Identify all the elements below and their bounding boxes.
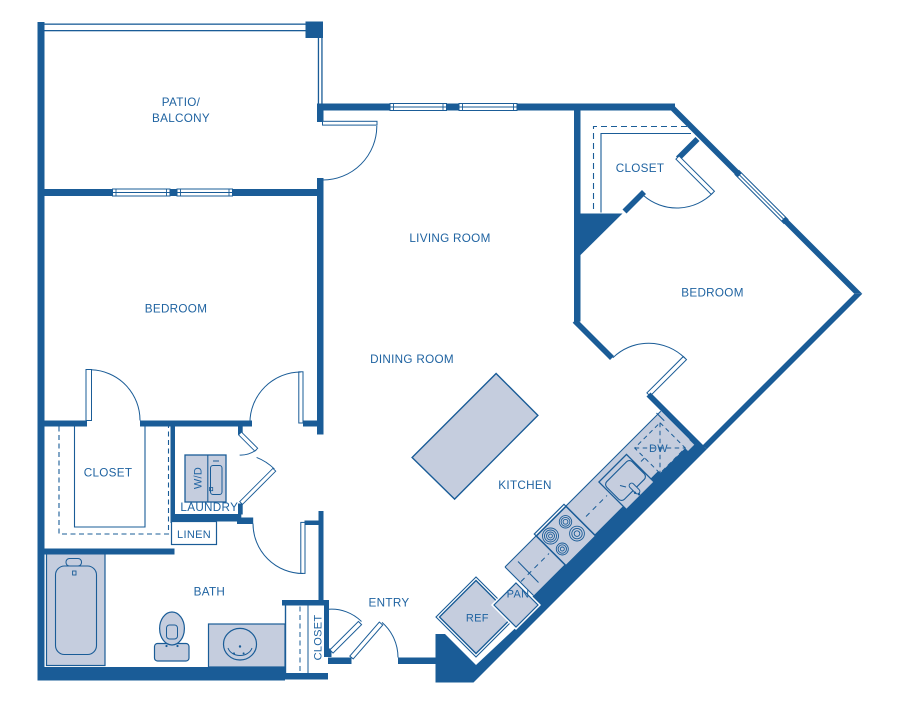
svg-text:LINEN: LINEN [177, 529, 211, 541]
svg-text:CLOSET: CLOSET [616, 162, 665, 175]
svg-text:DW: DW [649, 443, 668, 455]
svg-text:KITCHEN: KITCHEN [498, 479, 551, 492]
svg-text:REF: REF [466, 612, 489, 624]
svg-text:BEDROOM: BEDROOM [145, 303, 208, 316]
svg-text:PAN: PAN [507, 588, 530, 600]
svg-text:W/D: W/D [193, 467, 205, 489]
svg-text:BEDROOM: BEDROOM [681, 287, 744, 300]
svg-text:LAUNDRY: LAUNDRY [180, 501, 238, 514]
svg-text:PATIO/: PATIO/ [162, 96, 201, 109]
svg-text:CLOSET: CLOSET [313, 615, 325, 661]
svg-text:LIVING ROOM: LIVING ROOM [409, 232, 490, 245]
svg-text:ENTRY: ENTRY [369, 597, 410, 610]
svg-text:BATH: BATH [194, 586, 226, 599]
svg-text:CLOSET: CLOSET [84, 467, 133, 480]
svg-text:BALCONY: BALCONY [152, 112, 210, 125]
svg-text:DINING ROOM: DINING ROOM [370, 353, 454, 366]
